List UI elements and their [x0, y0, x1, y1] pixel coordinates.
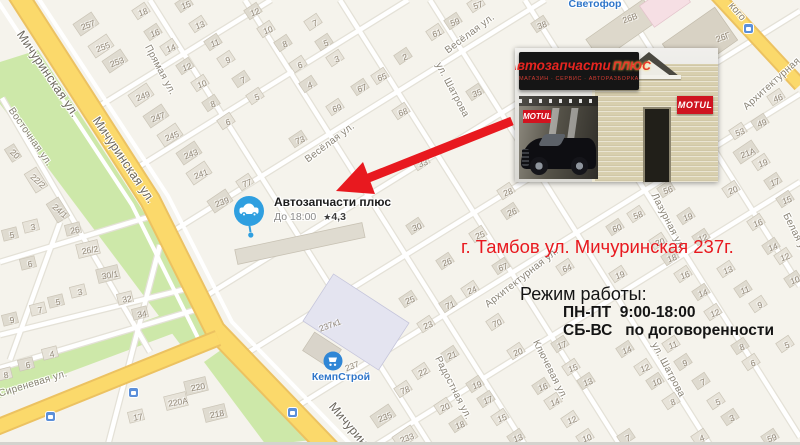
schedule-weekend: СБ-ВС по договоренности	[563, 322, 774, 340]
address-annotation: г. Тамбов ул. Мичуринская 237г.	[461, 236, 734, 258]
sign-title-suffix: ПЛЮС	[613, 59, 651, 73]
map-view[interactable]: Мичуринская ул.Мичуринская ул.Мичуринска…	[0, 0, 800, 445]
photo-door	[643, 107, 671, 182]
schedule-weekdays: ПН-ПТ 9:00-18:00	[563, 304, 696, 322]
pin-hours: До 18:00	[274, 211, 316, 223]
motul-banner-logo: MOTUL	[523, 110, 551, 122]
pin-title[interactable]: Автозапчасти плюс	[274, 196, 391, 209]
car-brand-logos-strip	[519, 96, 598, 106]
store-sign: АвтозапчастиПЛЮС МАГАЗИН · СЕРВИС · АВТО…	[519, 52, 639, 90]
storefront-photo: MOTUL MOTUL АвтозапчастиПЛЮС МАГАЗИН · С…	[515, 48, 718, 182]
motul-wall-sign: MOTUL	[677, 96, 713, 113]
sign-subtitle: МАГАЗИН · СЕРВИС · АВТОРАЗБОРКА	[519, 76, 639, 82]
pin-rating: 4,3	[331, 211, 346, 223]
photo-banner: MOTUL	[519, 96, 598, 179]
pin-anchor-dot	[248, 232, 253, 237]
pin-subtitle: До 18:00★4,3	[274, 211, 391, 223]
schedule-heading: Режим работы:	[520, 284, 647, 305]
pin-label[interactable]: Автозапчасти плюс До 18:00★4,3	[274, 196, 391, 223]
sign-title: Автозапчасти	[515, 58, 611, 73]
map-pin-autoparts[interactable]	[231, 195, 269, 246]
photo-car	[521, 134, 595, 176]
